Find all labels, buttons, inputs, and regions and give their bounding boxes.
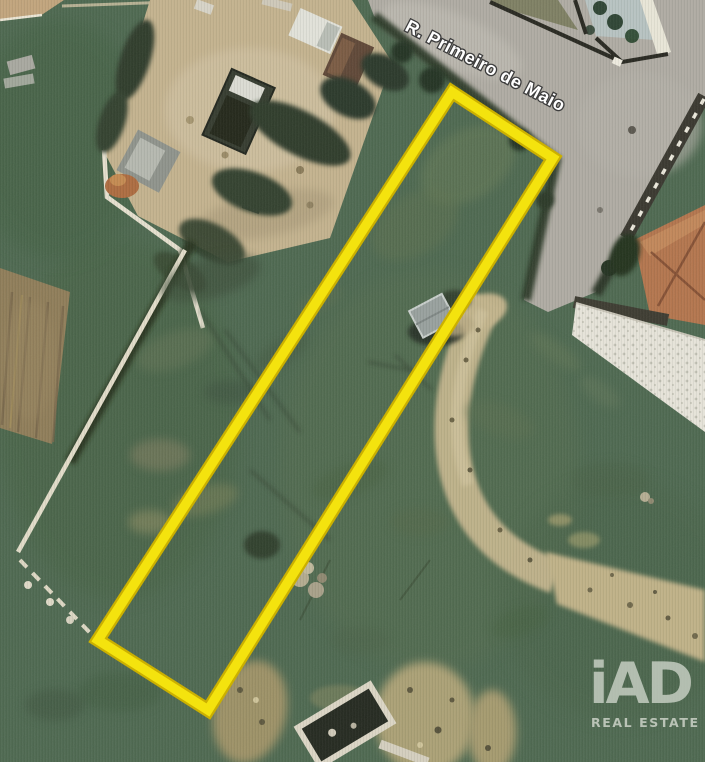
satellite-photo-view: R. Primeiro de Maio iAD REAL ESTATE: [0, 0, 705, 762]
brand-tagline-text: REAL ESTATE: [591, 715, 700, 730]
brand-logo-text: iAD: [589, 651, 692, 717]
brand-watermark: iAD REAL ESTATE: [589, 651, 700, 730]
aerial-photo: R. Primeiro de Maio iAD REAL ESTATE: [0, 0, 705, 762]
